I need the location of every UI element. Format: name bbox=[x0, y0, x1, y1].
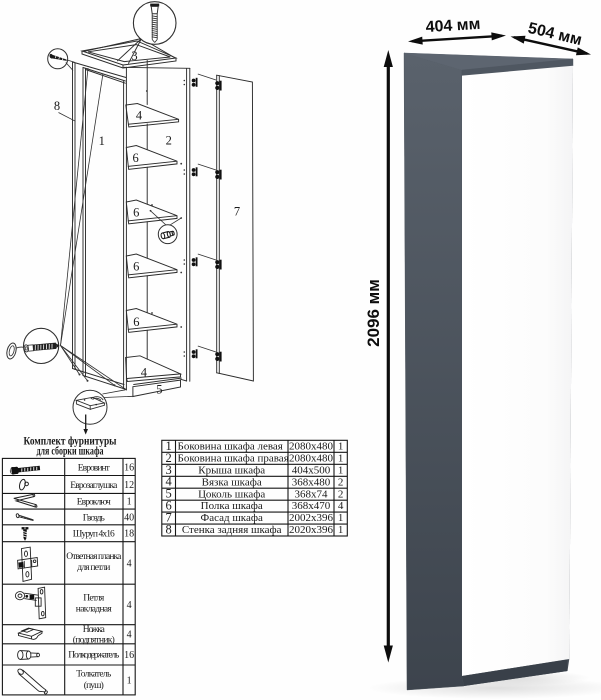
svg-text:Ответная планка: Ответная планка bbox=[66, 552, 122, 562]
svg-text:Стенка задняя шкафа: Стенка задняя шкафа bbox=[182, 524, 282, 536]
svg-text:1: 1 bbox=[338, 524, 344, 536]
svg-text:Евровинт: Евровинт bbox=[78, 463, 111, 473]
svg-text:6: 6 bbox=[133, 206, 139, 220]
svg-text:Вязка шкафа: Вязка шкафа bbox=[202, 476, 262, 488]
svg-text:2002х396: 2002х396 bbox=[289, 512, 334, 524]
svg-text:для сборки шкафа: для сборки шкафа bbox=[37, 446, 104, 458]
svg-text:для петли: для петли bbox=[77, 563, 110, 573]
svg-text:6: 6 bbox=[133, 260, 139, 274]
svg-text:накладная: накладная bbox=[76, 605, 113, 615]
svg-text:2096 мм: 2096 мм bbox=[364, 279, 383, 347]
svg-text:368х480: 368х480 bbox=[292, 476, 331, 488]
svg-text:1: 1 bbox=[338, 452, 344, 464]
svg-text:Крыша шкафа: Крыша шкафа bbox=[198, 464, 265, 476]
svg-text:6: 6 bbox=[132, 151, 138, 165]
svg-text:(подпятник): (подпятник) bbox=[73, 634, 115, 645]
svg-text:404 мм: 404 мм bbox=[425, 16, 481, 36]
svg-text:12: 12 bbox=[124, 480, 134, 491]
svg-text:368х74: 368х74 bbox=[295, 488, 329, 500]
svg-text:4: 4 bbox=[141, 366, 148, 380]
svg-text:Боковина шкафа левая: Боковина шкафа левая bbox=[178, 440, 283, 452]
svg-text:1: 1 bbox=[127, 497, 132, 508]
svg-text:3: 3 bbox=[131, 49, 137, 63]
svg-text:Цоколь шкафа: Цоколь шкафа bbox=[198, 488, 265, 500]
svg-text:Еврозаглушка: Еврозаглушка bbox=[70, 481, 118, 491]
svg-text:8: 8 bbox=[54, 99, 60, 113]
svg-text:4: 4 bbox=[338, 500, 344, 512]
svg-text:5: 5 bbox=[156, 383, 162, 397]
svg-text:Полка шкафа: Полка шкафа bbox=[201, 500, 263, 512]
svg-text:8: 8 bbox=[165, 523, 171, 537]
svg-text:7: 7 bbox=[234, 205, 240, 219]
svg-text:368х470: 368х470 bbox=[292, 500, 331, 512]
svg-text:Шуруп 4х16: Шуруп 4х16 bbox=[73, 530, 115, 540]
svg-text:404х500: 404х500 bbox=[292, 464, 331, 476]
svg-text:1: 1 bbox=[338, 512, 344, 524]
svg-text:4: 4 bbox=[136, 109, 143, 123]
svg-text:1: 1 bbox=[338, 464, 344, 476]
svg-text:16: 16 bbox=[124, 650, 134, 661]
svg-text:Гвоздь: Гвоздь bbox=[83, 513, 106, 523]
svg-text:4: 4 bbox=[127, 630, 132, 641]
svg-text:2020х396: 2020х396 bbox=[289, 524, 334, 536]
svg-text:16: 16 bbox=[124, 462, 134, 473]
svg-text:Фасад шкафа: Фасад шкафа bbox=[201, 512, 263, 524]
svg-text:18: 18 bbox=[124, 529, 134, 540]
svg-text:Полкодержатель: Полкодержатель bbox=[68, 651, 120, 661]
svg-text:Толкатель: Толкатель bbox=[76, 670, 112, 680]
svg-text:40: 40 bbox=[124, 512, 134, 523]
svg-text:2: 2 bbox=[166, 134, 172, 148]
svg-text:1: 1 bbox=[338, 440, 344, 452]
svg-text:1: 1 bbox=[127, 675, 132, 686]
svg-text:Евроключ: Евроключ bbox=[77, 498, 111, 508]
svg-text:4: 4 bbox=[127, 558, 132, 569]
svg-text:1: 1 bbox=[99, 134, 105, 148]
svg-text:2: 2 bbox=[338, 488, 344, 500]
svg-text:4: 4 bbox=[127, 600, 132, 611]
svg-text:Боковина шкафа правая: Боковина шкафа правая bbox=[178, 452, 289, 464]
svg-text:6: 6 bbox=[133, 315, 139, 329]
svg-text:(пуш): (пуш) bbox=[84, 680, 104, 691]
svg-text:Ножка: Ножка bbox=[83, 625, 106, 635]
svg-text:Петля: Петля bbox=[83, 594, 105, 604]
svg-text:2: 2 bbox=[338, 476, 344, 488]
svg-text:2080х480: 2080х480 bbox=[289, 452, 334, 464]
svg-text:2080х480: 2080х480 bbox=[289, 440, 334, 452]
